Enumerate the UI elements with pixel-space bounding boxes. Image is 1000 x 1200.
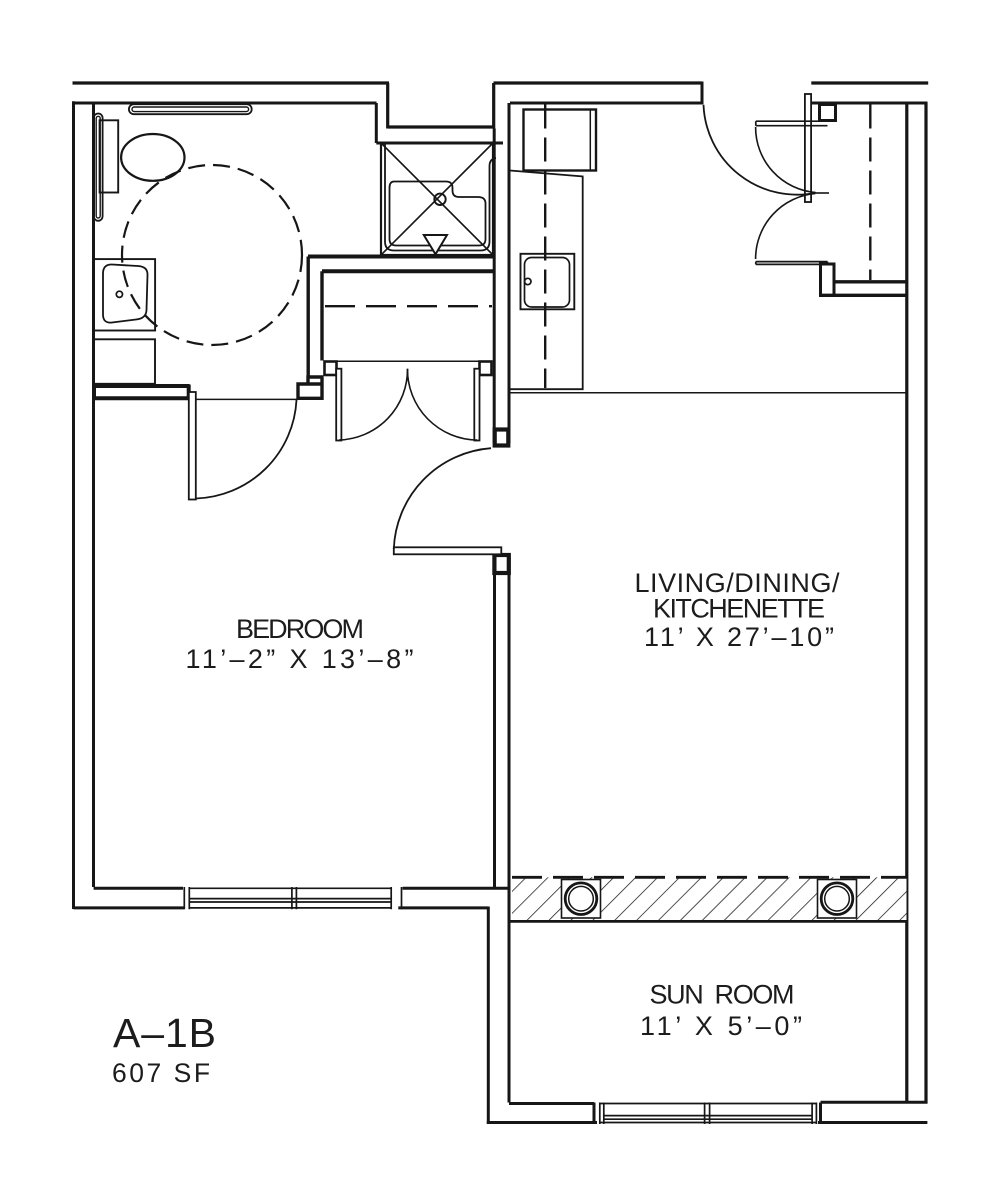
svg-text:A–1B: A–1B xyxy=(113,1010,216,1056)
svg-text:BEDROOM: BEDROOM xyxy=(236,614,364,644)
svg-text:11’ X 5’–0”: 11’ X 5’–0” xyxy=(640,1011,802,1041)
svg-text:SUN ROOM: SUN ROOM xyxy=(650,980,795,1010)
svg-text:11’–2” X 13’–8”: 11’–2” X 13’–8” xyxy=(186,644,414,674)
svg-text:607 SF: 607 SF xyxy=(112,1058,210,1088)
svg-text:KITCHENETTE: KITCHENETTE xyxy=(653,594,825,624)
